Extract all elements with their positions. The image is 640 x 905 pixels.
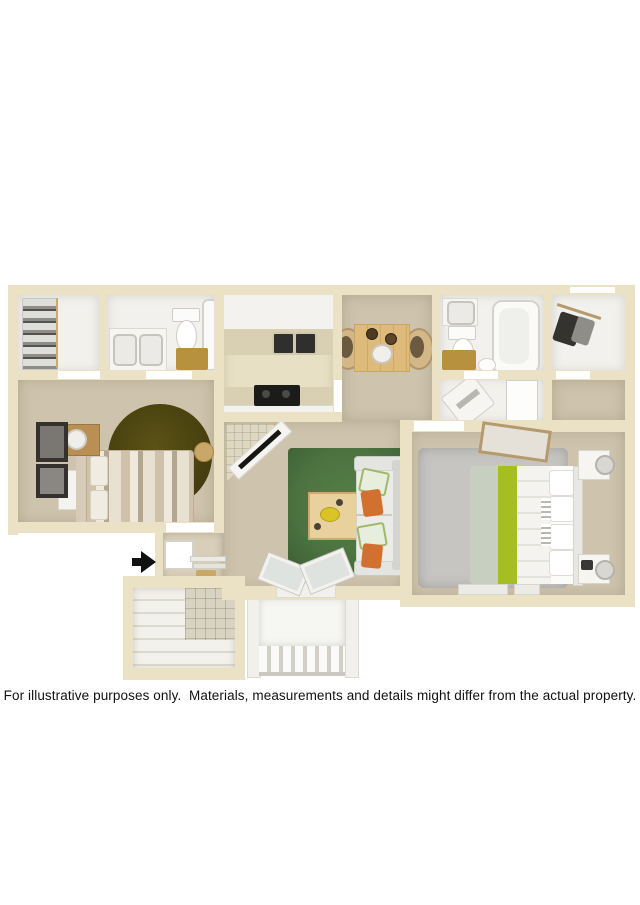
kitchen-upper-cabinets [224,295,333,330]
deck-wall-right [345,598,359,678]
bedroom-1-headboard [76,448,86,528]
bedroom-1-stool [194,442,214,462]
laundry-closet-door [506,380,538,422]
coffee-table-plate [320,507,340,522]
closet-shelves [22,298,58,370]
dining-bowl-2 [385,333,397,345]
door-gap-closet2 [556,371,590,379]
bedroom-2-bed-sage [470,466,498,584]
deck-floor [259,598,345,646]
sink-1b [139,334,163,366]
sink-1a [113,334,137,366]
deck-railing [259,646,345,674]
sink-2 [447,301,475,325]
fireplace-glass-right [300,548,354,593]
bedroom-2-bed-chartreuse-runner [498,466,517,584]
entry-arrow-icon [130,548,158,576]
door-gap-bedroom1 [146,371,192,379]
bedroom-1-pillow-a [90,456,108,486]
sofa-orange-pillow-top [360,489,383,518]
wall-bath2-closet2 [544,290,552,372]
page: For illustrative purposes only. Material… [0,0,640,905]
range-burner-2 [282,390,290,398]
wall-under-bath2row [432,370,635,380]
bath-1-gold-floor [176,348,208,370]
wall-right [625,285,635,605]
bedroom-1-pillow-b [90,490,108,520]
bedroom-2-pillow-4 [549,550,575,576]
dining-chair-right-seat [410,336,424,358]
wall-art-1 [36,422,68,462]
entry-step-1 [190,556,226,562]
floor-plan [0,0,640,905]
range-burner-1 [262,390,270,398]
window-gap-closet2-top [570,287,615,293]
lamp-top [595,455,615,475]
dining-bowl-1 [366,328,378,340]
bedroom-2-accent-pillow-2 [541,524,551,546]
entry-step-2 [193,563,226,569]
wall-bath2-left [432,290,440,380]
bedroom-1-lamp [66,429,87,450]
wall-storage-bottom [123,668,245,680]
wall-bedroom2-bottom [400,595,635,607]
wall-art-2 [36,464,68,498]
bathtub-2-basin [499,308,529,364]
floor-register-2 [514,584,540,595]
wall-bath1-kitchen [214,285,224,422]
wall-bedroom1-right [214,422,224,533]
lamp-bottom [595,560,615,580]
bedroom-2-pillow-2 [549,496,575,522]
bath-2-gold-floor [442,350,476,370]
door-gap-bath2 [464,371,498,379]
door-gap-bedroom2 [414,421,464,431]
coffee-table-item-1 [314,523,321,530]
entry-door-sidelight [164,540,194,570]
coffee-table-item-2 [336,499,343,506]
sofa-orange-pillow-bottom [361,543,383,569]
dining-centerpiece [371,344,393,364]
bedroom-2-accent-pillow-1 [541,498,551,520]
floor-register-1 [458,584,508,595]
door-gap-kitchen [334,380,342,412]
nightstand-clock [581,560,593,570]
wall-storage-left [123,576,133,680]
closet-rod [56,298,58,368]
disclaimer-text: For illustrative purposes only. Material… [0,688,640,703]
bedroom-2-pillow-1 [549,470,575,496]
hall-floor [552,380,625,422]
fireplace [258,550,350,598]
wall-closet1-bath1 [99,290,107,372]
range [254,385,300,406]
kitchen-sink-right [294,332,317,355]
door-gap-hall-bedroom1 [166,523,214,532]
bedroom-2-pillow-3 [549,524,575,550]
wall-under-kitchen [214,412,342,422]
kitchen-sink-left [272,332,295,355]
deck-edge [259,672,345,676]
wall-living-bedroom2 [400,430,412,607]
door-gap-bath1 [58,371,100,379]
wall-left [8,285,18,535]
